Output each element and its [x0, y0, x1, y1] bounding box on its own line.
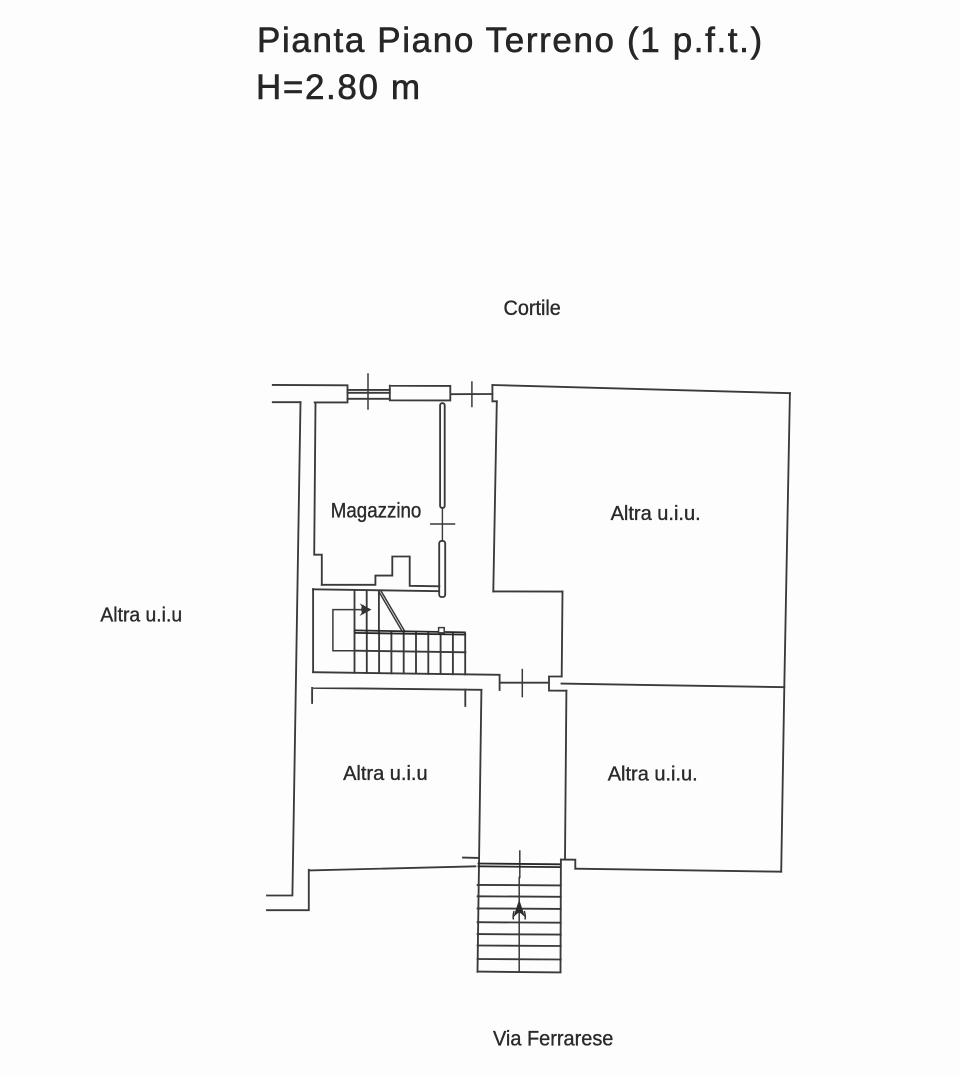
- svg-text:Magazzino: Magazzino: [331, 500, 422, 523]
- svg-text:Altra u.i.u.: Altra u.i.u.: [611, 503, 701, 525]
- svg-text:Altra u.i.u: Altra u.i.u: [343, 763, 427, 785]
- svg-text:Cortile: Cortile: [504, 297, 561, 320]
- svg-text:Altra u.i.u.: Altra u.i.u.: [608, 764, 698, 786]
- svg-text:H=2.80 m: H=2.80 m: [256, 68, 422, 107]
- svg-text:Altra u.i.u: Altra u.i.u: [100, 604, 182, 626]
- svg-text:Pianta Piano Terreno (1 p.f.t.: Pianta Piano Terreno (1 p.f.t.): [257, 21, 764, 60]
- svg-text:Via Ferrarese: Via Ferrarese: [493, 1028, 613, 1051]
